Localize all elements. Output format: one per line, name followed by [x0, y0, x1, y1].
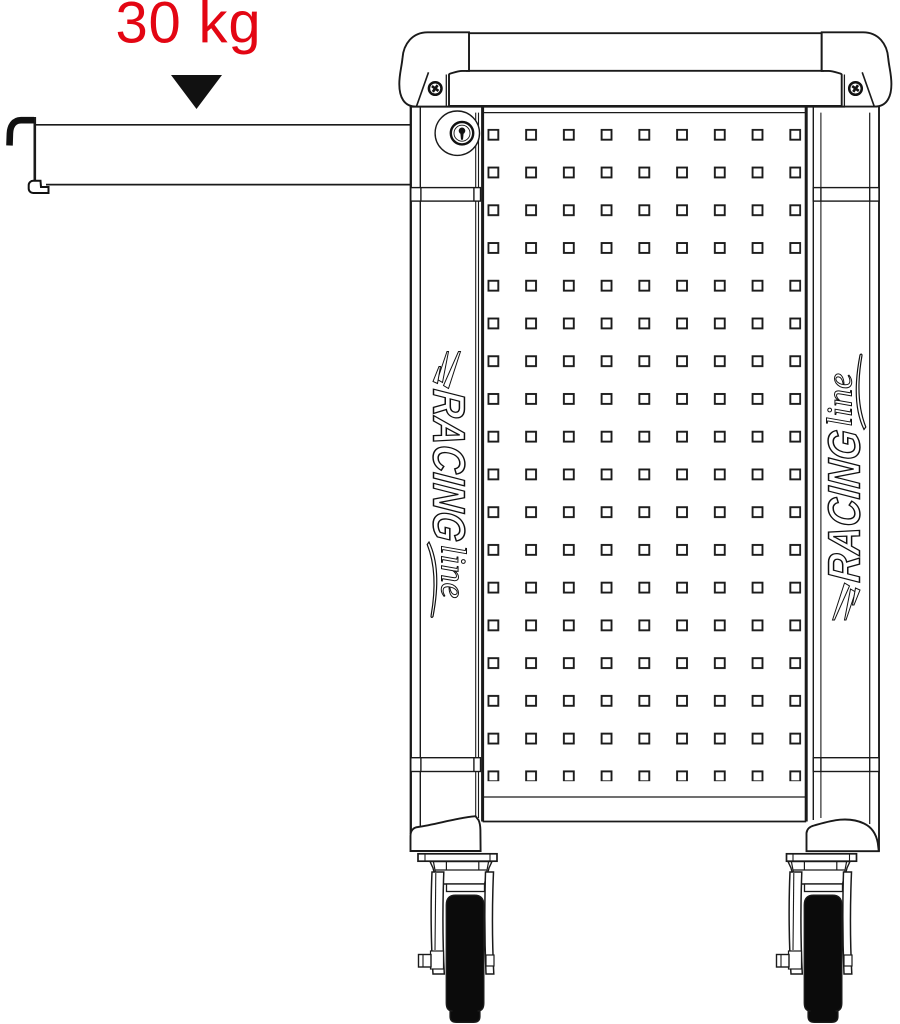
svg-text:RACING: RACING: [424, 388, 475, 544]
svg-text:RACING: RACING: [819, 428, 870, 584]
svg-text:30 kg: 30 kg: [116, 0, 262, 56]
svg-text:line: line: [820, 373, 860, 427]
svg-text:line: line: [434, 545, 474, 599]
